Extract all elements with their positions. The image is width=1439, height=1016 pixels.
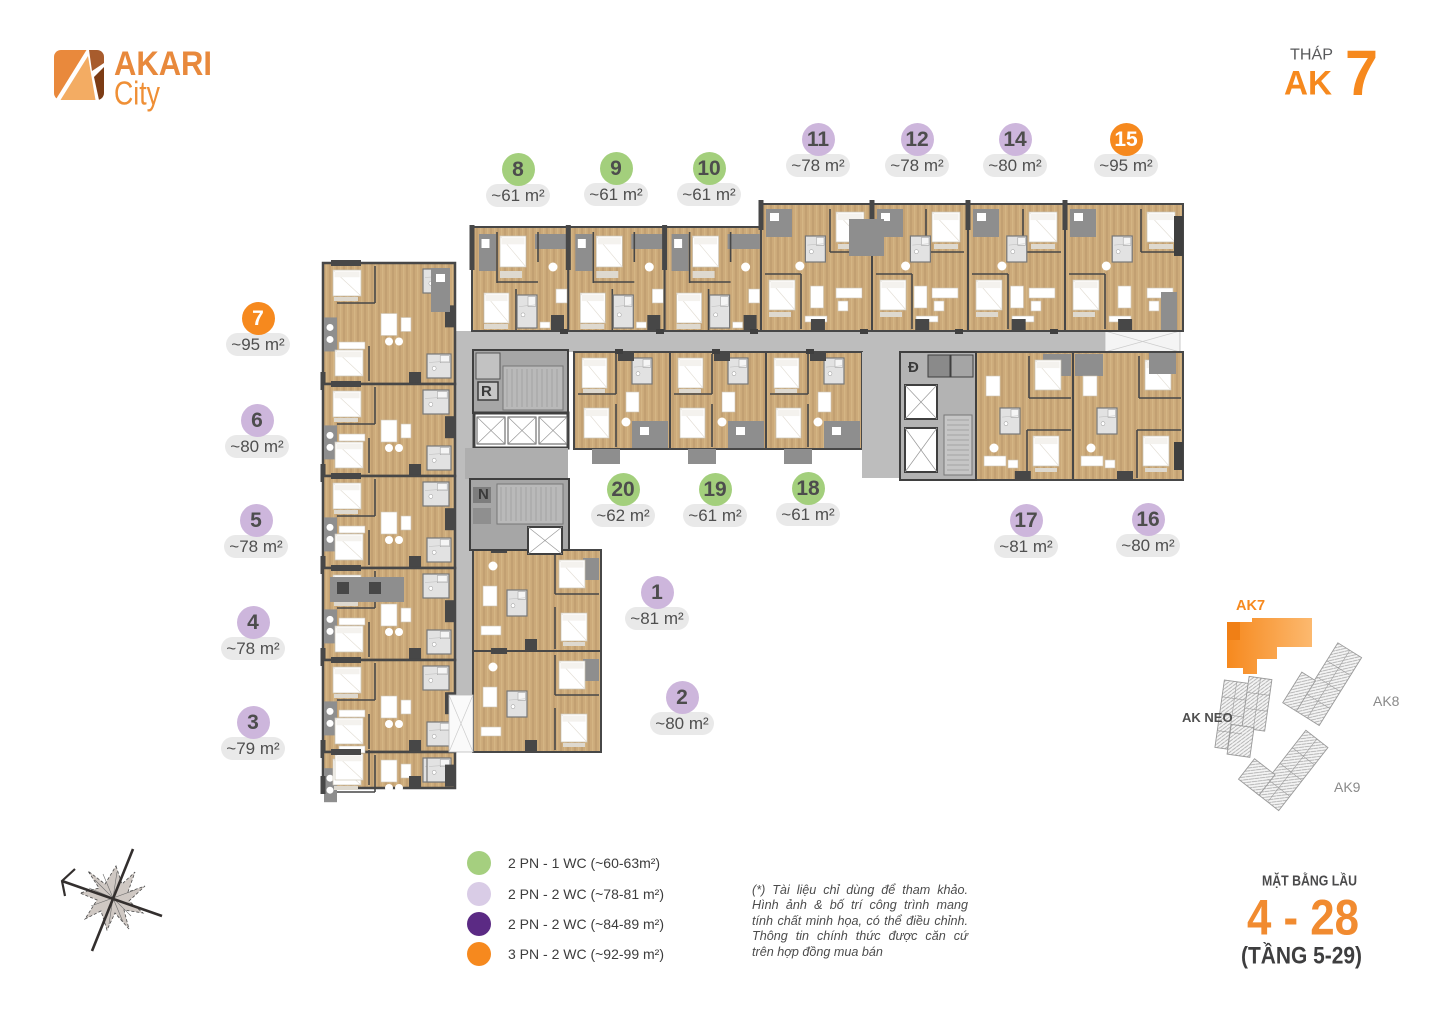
svg-text:City: City: [114, 75, 160, 112]
svg-text:7: 7: [1345, 37, 1378, 109]
svg-text:AK: AK: [1284, 65, 1332, 103]
svg-text:AK7: AK7: [1236, 598, 1265, 614]
svg-text:AK8: AK8: [1373, 693, 1400, 709]
svg-text:THÁP: THÁP: [1290, 45, 1333, 64]
svg-text:AK NEO: AK NEO: [1182, 710, 1233, 725]
svg-text:AK9: AK9: [1334, 779, 1361, 795]
svg-text:4 - 28: 4 - 28: [1247, 890, 1359, 946]
svg-text:(TẦNG 5-29): (TẦNG 5-29): [1241, 942, 1362, 970]
svg-text:Đ: Đ: [908, 359, 919, 376]
svg-text:R: R: [481, 383, 492, 400]
svg-text:N: N: [478, 486, 489, 503]
svg-text:MẶT BẰNG LẦU: MẶT BẰNG LẦU: [1262, 872, 1357, 890]
